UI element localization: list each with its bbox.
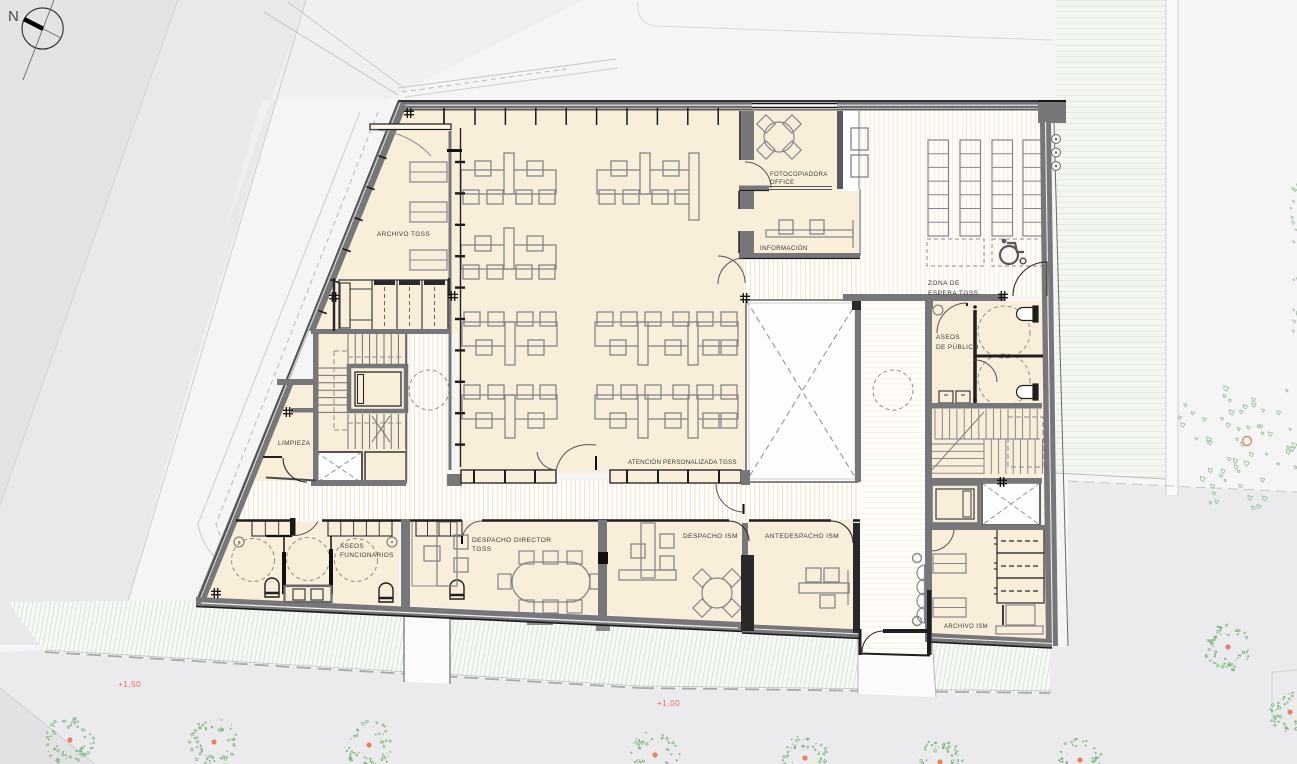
svg-text:ASEOS: ASEOS: [340, 543, 364, 550]
svg-text:DESPACHO ISM: DESPACHO ISM: [683, 533, 738, 540]
svg-text:+1,00: +1,00: [657, 699, 680, 708]
svg-text:TGSS: TGSS: [472, 546, 492, 553]
svg-text:FUNCIONARIOS: FUNCIONARIOS: [340, 552, 394, 559]
svg-text:ASEOS: ASEOS: [936, 334, 960, 341]
svg-text:ZONA DE: ZONA DE: [928, 280, 960, 287]
svg-text:DE PÚBLICO: DE PÚBLICO: [936, 342, 979, 351]
svg-text:ESPERA TGSS: ESPERA TGSS: [928, 290, 979, 297]
svg-text:OFFICE: OFFICE: [770, 180, 794, 186]
svg-text:ARCHIVO ISM: ARCHIVO ISM: [944, 624, 988, 630]
svg-text:N: N: [8, 8, 19, 25]
svg-text:FOTOCOPIADORA: FOTOCOPIADORA: [770, 172, 828, 178]
svg-text:LIMPIEZA: LIMPIEZA: [278, 440, 311, 447]
svg-text:DESPACHO DIRECTOR: DESPACHO DIRECTOR: [472, 537, 551, 544]
svg-text:ATENCIÓN PERSONALIZADA TGSS: ATENCIÓN PERSONALIZADA TGSS: [628, 459, 737, 466]
svg-text:+1,50: +1,50: [118, 680, 141, 689]
svg-text:ANTEDESPACHO ISM: ANTEDESPACHO ISM: [765, 533, 839, 540]
svg-text:INFORMACIÓN: INFORMACIÓN: [760, 245, 808, 252]
svg-text:ARCHIVO TGSS: ARCHIVO TGSS: [377, 231, 430, 238]
